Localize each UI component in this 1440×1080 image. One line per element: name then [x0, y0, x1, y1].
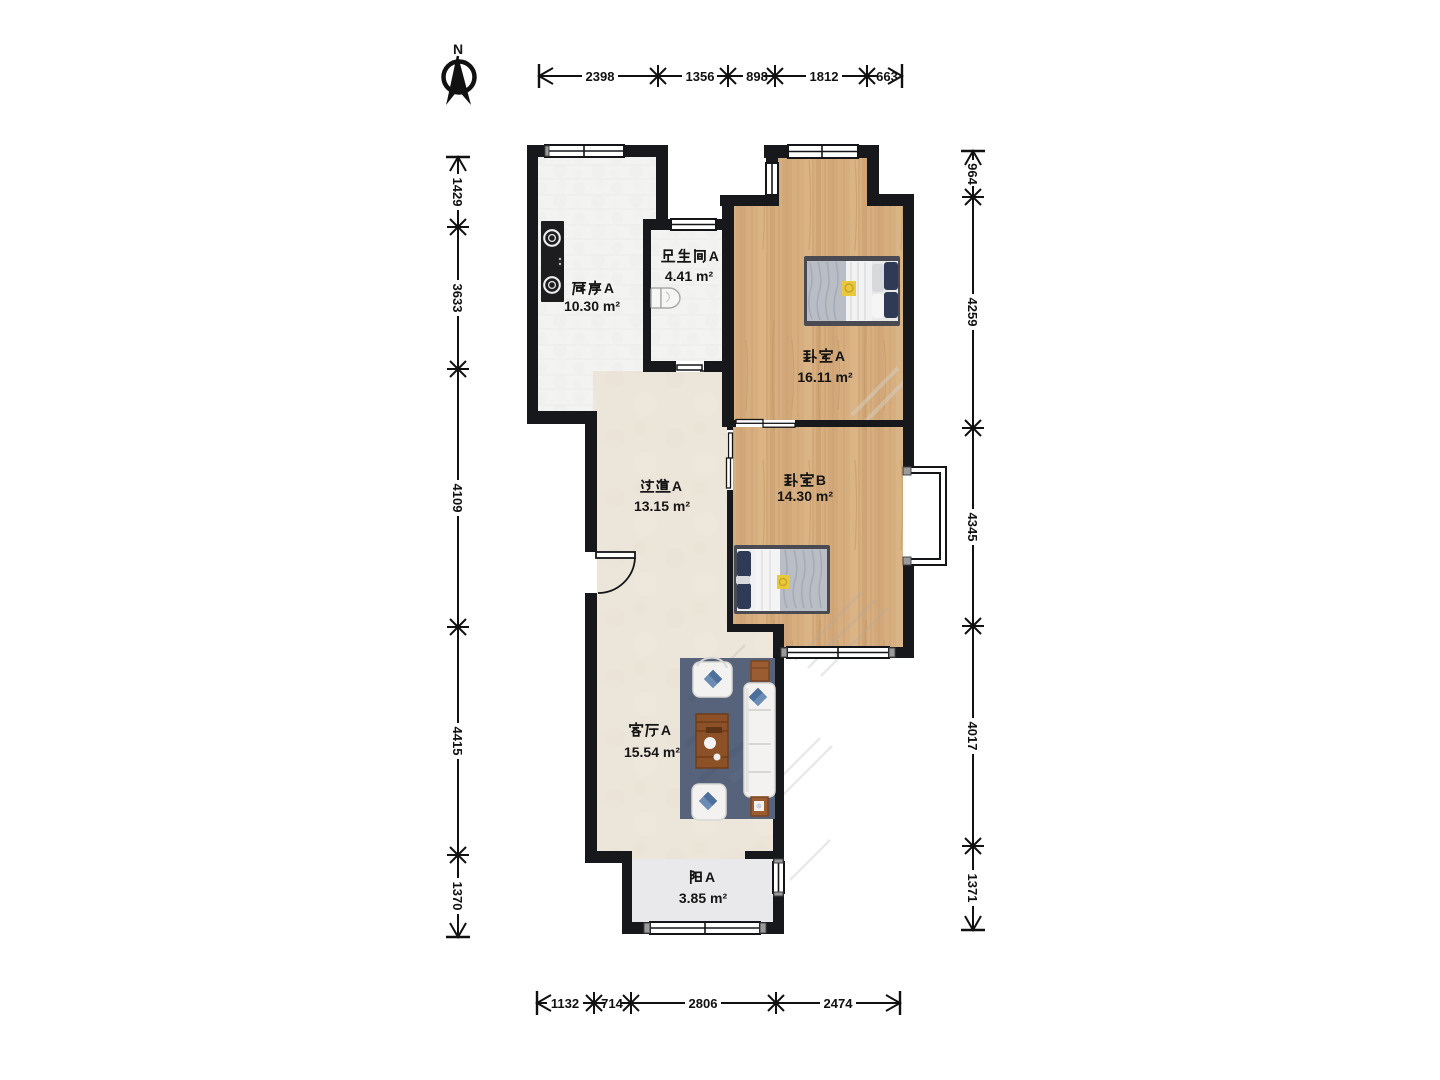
svg-text:16.11 m²: 16.11 m² — [797, 369, 853, 385]
svg-text:964: 964 — [965, 163, 980, 185]
svg-text:10.30 m²: 10.30 m² — [564, 298, 620, 314]
svg-text:B: B — [816, 472, 826, 488]
svg-text:2806: 2806 — [689, 996, 718, 1011]
svg-text:A: A — [661, 722, 671, 738]
svg-text:2474: 2474 — [824, 996, 854, 1011]
svg-text:4109: 4109 — [450, 484, 465, 513]
svg-text:4345: 4345 — [965, 513, 980, 542]
svg-text:2398: 2398 — [586, 69, 615, 84]
svg-text:A: A — [672, 478, 682, 494]
svg-text:A: A — [709, 248, 719, 264]
svg-text:4259: 4259 — [965, 298, 980, 327]
svg-text:1370: 1370 — [450, 882, 465, 911]
svg-text:1371: 1371 — [965, 874, 980, 903]
svg-text:13.15 m²: 13.15 m² — [634, 498, 690, 514]
svg-text:1132: 1132 — [551, 996, 579, 1011]
svg-text:4415: 4415 — [450, 727, 465, 756]
svg-text:A: A — [604, 280, 614, 296]
svg-text:A: A — [835, 348, 845, 364]
svg-text:1429: 1429 — [450, 178, 465, 207]
svg-text:15.54 m²: 15.54 m² — [624, 744, 680, 760]
svg-text:N: N — [453, 41, 463, 57]
svg-text:4017: 4017 — [965, 722, 980, 751]
svg-text:1812: 1812 — [810, 69, 839, 84]
svg-text:14.30 m²: 14.30 m² — [777, 488, 833, 504]
svg-text:3.85 m²: 3.85 m² — [679, 890, 728, 906]
svg-text:3633: 3633 — [450, 284, 465, 313]
svg-text:A: A — [705, 869, 715, 885]
svg-text:1356: 1356 — [686, 69, 715, 84]
svg-text:4.41 m²: 4.41 m² — [665, 268, 714, 284]
